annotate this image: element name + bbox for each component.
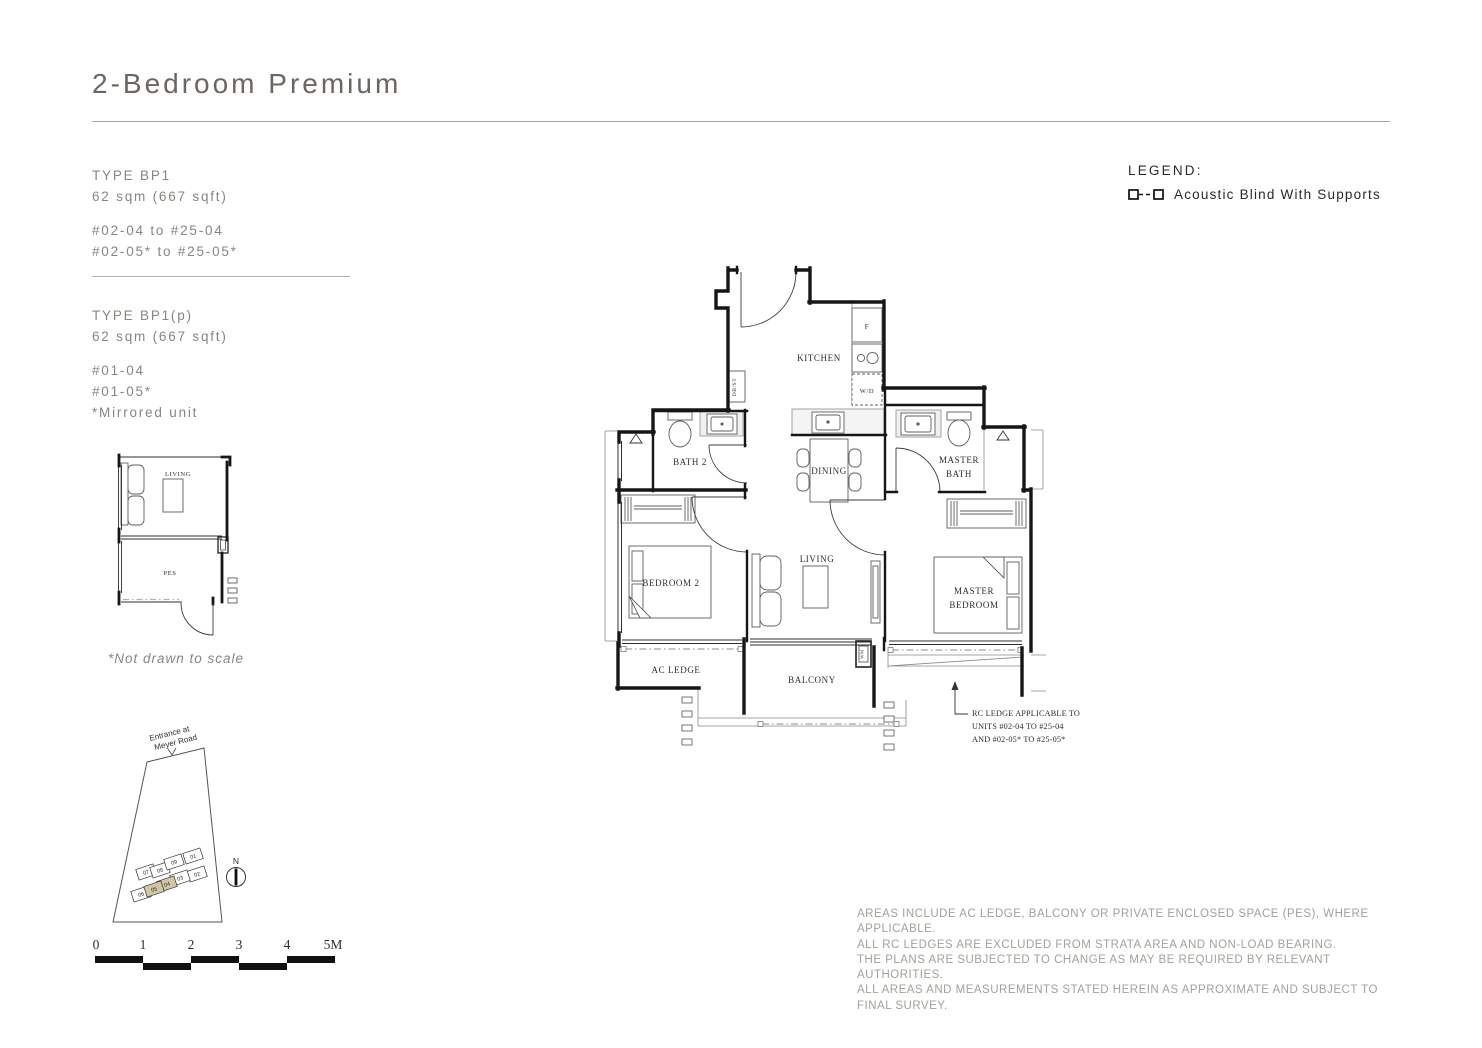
dining-chair	[797, 473, 809, 491]
disclaimer-line: AREAS INCLUDE AC LEDGE, BALCONY OR PRIVA…	[857, 907, 1402, 938]
inset-coffee-table	[163, 479, 183, 512]
entry-door	[741, 272, 796, 327]
bath2-door	[709, 445, 747, 483]
unit-range: #01-05*	[92, 381, 228, 402]
label-fridge: F	[865, 323, 870, 331]
svg-text:4: 4	[284, 937, 291, 952]
svg-text:3: 3	[236, 937, 243, 952]
rc-ledge-callout: RC LEDGE APPLICABLE TO UNITS #02-04 TO #…	[952, 681, 1081, 744]
coffee-table	[803, 566, 828, 608]
svg-text:0: 0	[93, 937, 100, 952]
site-unit-09: 09	[164, 854, 185, 870]
unit-type-area: 62 sqm (667 sqft)	[92, 186, 238, 207]
unit-cluster: 06 07 08 09 01 02 03 04	[131, 848, 208, 902]
title-divider	[92, 121, 1390, 122]
acoustic-blind-icon	[1128, 188, 1166, 201]
bath2-toilet-tank	[668, 412, 692, 420]
svg-text:1: 1	[140, 937, 147, 952]
site-unit-05-highlighted: 05	[144, 881, 165, 897]
dining-chair	[849, 449, 861, 467]
label-bedroom2: BEDROOM 2	[642, 578, 699, 588]
master-bath-door	[896, 448, 940, 492]
unit-range: #02-05* to #25-05*	[92, 241, 238, 262]
inset-sofa-cushion	[128, 465, 144, 494]
disclaimer: AREAS INCLUDE AC LEDGE, BALCONY OR PRIVA…	[857, 907, 1402, 1014]
main-floor-plan: KITCHEN BATH 2 DINING MASTER BATH BEDROO…	[596, 252, 1116, 752]
unit-type-block-2: TYPE BP1(p) 62 sqm (667 sqft) #01-04 #01…	[92, 305, 228, 423]
inset-sofa-cushion	[128, 496, 144, 525]
scale-bar: 0 1 2 3 4 5M	[88, 932, 348, 980]
master-wardrobe	[947, 499, 1026, 528]
callout-line: UNITS #02-04 TO #25-04	[972, 722, 1064, 731]
label-dining: DINING	[811, 466, 847, 476]
inset-label-living: LIVING	[165, 471, 191, 478]
label-wm: WM	[860, 649, 865, 658]
label-master-bedroom: BEDROOM	[949, 600, 998, 610]
inset-sofa-back	[121, 463, 128, 525]
inset-door	[181, 603, 213, 635]
unit-range: #02-04 to #25-04	[92, 220, 238, 241]
tv-console	[871, 561, 880, 623]
master-bedroom-door	[830, 500, 885, 555]
bath2-toilet	[669, 421, 691, 447]
label-ac-ledge: AC LEDGE	[651, 665, 700, 675]
svg-text:N: N	[233, 856, 239, 866]
site-unit-01: 01	[183, 848, 204, 864]
not-to-scale-note: *Not drawn to scale	[108, 651, 244, 666]
scale-bars	[95, 956, 335, 970]
callout-line: AND #02-05* TO #25-05*	[972, 735, 1065, 744]
floorplan-page: 2-Bedroom Premium TYPE BP1 62 sqm (667 s…	[0, 0, 1482, 1048]
unit-type-area: 62 sqm (667 sqft)	[92, 326, 228, 347]
compass-icon: N	[227, 856, 246, 887]
label-balcony: BALCONY	[788, 675, 836, 685]
disclaimer-line: ALL RC LEDGES ARE EXCLUDED FROM STRATA A…	[857, 938, 1402, 953]
master-toilet-tank	[947, 412, 971, 420]
vent-triangle	[997, 431, 1009, 440]
mirrored-note: *Mirrored unit	[92, 402, 228, 423]
bedroom2-door	[692, 497, 747, 552]
site-boundary	[113, 748, 222, 922]
dining-chair	[849, 473, 861, 491]
inset-furniture	[121, 463, 237, 603]
unit-type-name: TYPE BP1	[92, 165, 238, 186]
info-divider	[92, 276, 350, 277]
master-toilet	[948, 420, 970, 446]
label-kitchen: KITCHEN	[797, 353, 841, 363]
page-title: 2-Bedroom Premium	[92, 68, 401, 100]
unit-type-name: TYPE BP1(p)	[92, 305, 228, 326]
label-bath2: BATH 2	[673, 457, 707, 467]
disclaimer-line: THE PLANS ARE SUBJECTED TO CHANGE AS MAY…	[857, 953, 1402, 984]
vent-triangle	[630, 434, 642, 443]
entrance-arrow-icon	[168, 748, 176, 755]
label-db-st: DB/ST	[732, 378, 738, 397]
legend-item-label: Acoustic Blind With Supports	[1174, 187, 1381, 202]
scale-labels: 0 1 2 3 4 5M	[93, 937, 343, 952]
inset-plan: LIVING PES	[95, 445, 255, 650]
svg-text:5M: 5M	[324, 937, 343, 952]
legend: LEGEND: Acoustic Blind With Supports	[1128, 163, 1381, 202]
entrance-label: Entrance at Meyer Road	[148, 725, 197, 753]
unit-type-block-1: TYPE BP1 62 sqm (667 sqft) #02-04 to #25…	[92, 165, 238, 262]
inset-label-pes: PES	[163, 570, 176, 577]
bedroom2-wardrobe	[621, 495, 695, 523]
disclaimer-line: ALL AREAS AND MEASUREMENTS STATED HEREIN…	[857, 983, 1402, 1014]
label-living: LIVING	[800, 554, 835, 564]
dining-chair	[797, 449, 809, 467]
unit-range: #01-04	[92, 360, 228, 381]
svg-text:2: 2	[188, 937, 195, 952]
label-master-bath: MASTER	[939, 455, 979, 465]
legend-title: LEGEND:	[1128, 163, 1381, 178]
label-master-bath: BATH	[946, 469, 972, 479]
sofa	[752, 554, 781, 627]
callout-line: RC LEDGE APPLICABLE TO	[972, 709, 1080, 718]
site-plan: Entrance at Meyer Road 06 07 08 09 01	[100, 725, 265, 930]
label-master-bedroom: MASTER	[954, 586, 994, 596]
label-washer-dryer: W/D	[860, 388, 874, 395]
